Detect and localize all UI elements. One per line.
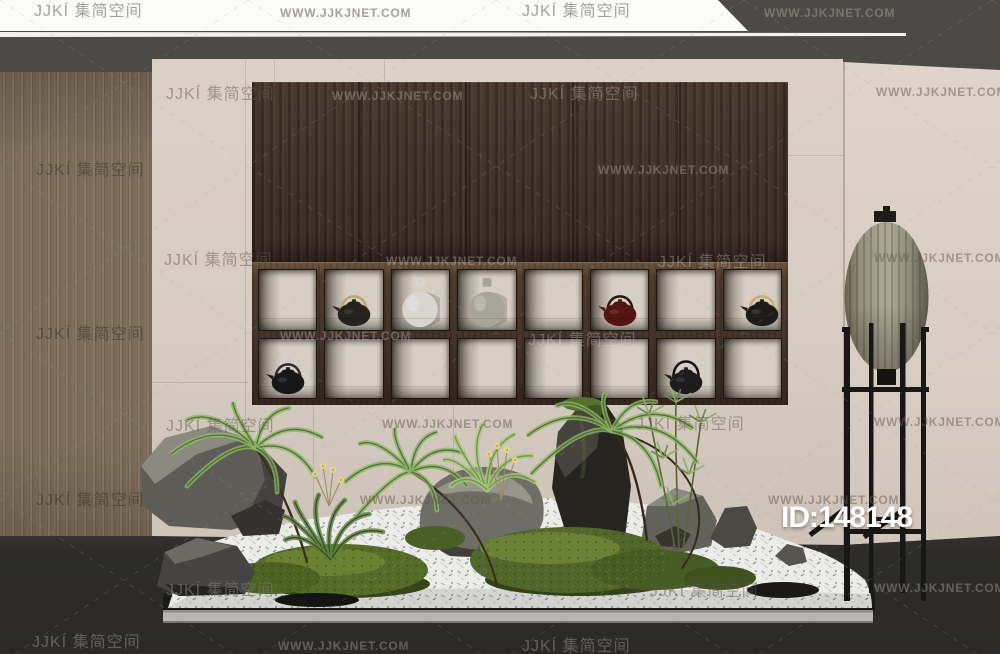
ceiling-banner [0, 0, 748, 31]
floor-lantern [800, 205, 935, 605]
wall-seam [152, 382, 248, 383]
render-scene: JJKÍ 集简空间WWW.JJKJNET.COMJJKÍ 集简空间WWW.JJK… [0, 0, 1000, 654]
asset-id-label: ID:148148 [781, 501, 912, 535]
wall-seam [786, 155, 843, 156]
display-shelf [252, 262, 788, 405]
shelf-cubby [524, 269, 583, 331]
ceiling-banner-edge [0, 32, 906, 37]
black-teapot-gold-handle-right [738, 283, 782, 329]
black-tray [275, 593, 359, 607]
wall-seam [384, 60, 385, 84]
dark-red-teapot [596, 283, 644, 329]
wood-cabinet-doors [252, 82, 788, 262]
shelf-cubby [324, 269, 383, 331]
shelf-cubby [258, 269, 317, 331]
shelf-cubby [656, 269, 715, 331]
watermark-text: WWW.JJKJNET.COM [764, 7, 895, 20]
wood-panel-wall [0, 72, 152, 536]
cabinet-door-seam [358, 82, 360, 262]
shelf-cubby [723, 269, 782, 331]
cabinet-door-seam [679, 82, 681, 262]
lamp-stand-front [810, 323, 929, 601]
shelf-cubby [590, 269, 649, 331]
white-round-vase [400, 276, 440, 329]
cabinet-door-seam [465, 82, 467, 262]
shelf-cubby [391, 269, 450, 331]
lantern-shade [845, 206, 929, 385]
black-teapot-gold-handle [330, 283, 378, 329]
wall-seam [274, 60, 275, 84]
shelf-cubby [457, 269, 516, 331]
gray-round-vase [467, 276, 507, 329]
cabinet-door-seam [572, 82, 574, 262]
